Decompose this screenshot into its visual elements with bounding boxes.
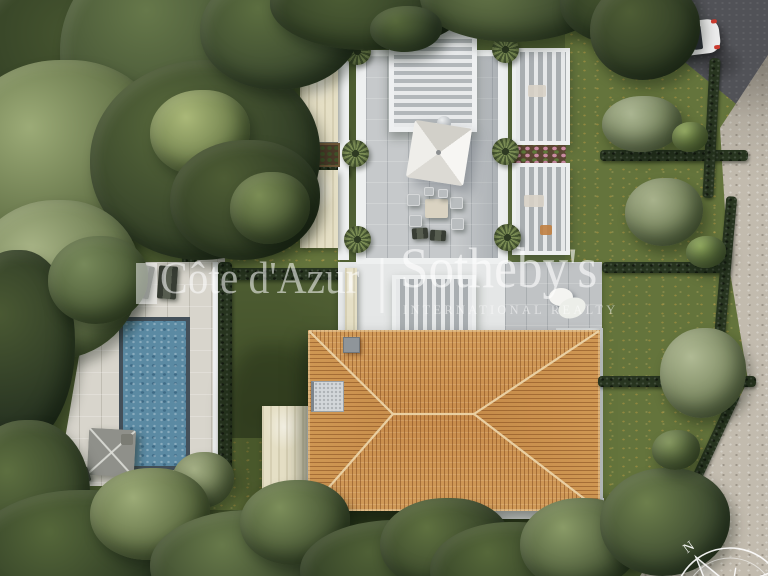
outdoor-stool [438,189,448,198]
flower-planter [514,145,566,165]
outdoor-chair [409,215,422,227]
outdoor-chair [450,197,463,209]
car-taillight [714,45,720,50]
awning [262,406,307,490]
sun-lounger [430,230,447,242]
outdoor-stool [424,187,434,196]
compass-north-label: N [681,539,698,557]
outdoor-chair [451,218,464,230]
sun-lounger [412,227,429,239]
outdoor-table [425,199,448,218]
skylight [311,381,344,412]
hedge [600,150,748,161]
pergola-furniture [540,225,552,235]
main-house-roof [308,330,600,511]
palm-tree [494,224,521,251]
louvered-skylight [392,275,476,334]
villa-aerial-render: N E Côte d'Azur | Sotheby's INTERNATIONA… [0,0,768,576]
outdoor-chair [407,194,420,206]
pergola-furniture [524,195,544,207]
awning [345,268,357,330]
pergola-furniture [528,85,546,97]
hedge [225,268,347,280]
palm-tree [492,138,519,165]
palm-tree [342,140,369,167]
palm-tree [344,226,371,253]
chimney [343,337,360,353]
side-table [121,434,133,445]
compass-rose-icon: N E [648,526,768,576]
umbrella-pole [436,150,441,155]
slatted-pergola [512,163,570,255]
sun-lounger [157,265,178,299]
roof-ridge-lines [308,330,600,511]
